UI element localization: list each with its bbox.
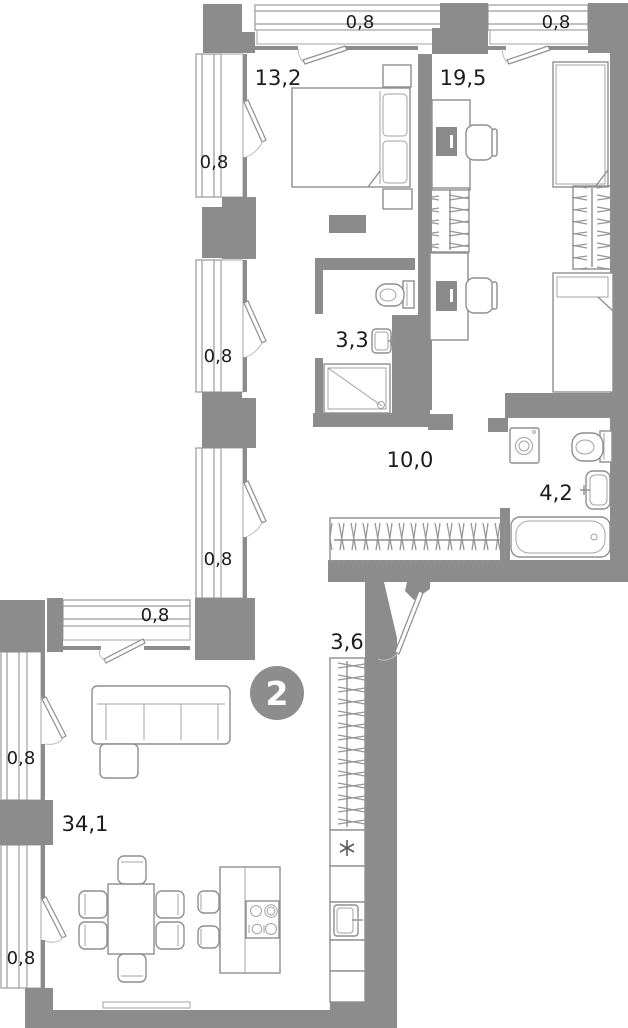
wall-jamb xyxy=(488,418,508,432)
room-area-label: 19,5 xyxy=(440,66,487,90)
balcony-door xyxy=(244,481,266,523)
cooktop xyxy=(246,901,279,938)
wall-pillar xyxy=(0,800,53,845)
wall-pillar xyxy=(222,398,256,448)
room-count-badge-label: 2 xyxy=(266,674,289,713)
wall-thin xyxy=(243,357,247,392)
wall-thin xyxy=(63,646,101,650)
wall-thin xyxy=(243,157,247,197)
washbasin xyxy=(580,471,610,509)
dining-chair xyxy=(156,922,184,949)
wall-pillar xyxy=(0,600,45,652)
bar-stool xyxy=(198,891,219,913)
room-area-label: 13,2 xyxy=(255,66,302,90)
room-area-label: 34,1 xyxy=(62,812,109,836)
room-bedroom xyxy=(292,65,412,233)
wall-thin xyxy=(243,260,247,303)
shower-tray xyxy=(324,364,390,413)
room-area-label: 4,2 xyxy=(539,481,572,505)
toilet xyxy=(376,281,414,308)
floor-plan-page: 0,8 0,8 0,8 0,8 0,8 0,8 0,8 0,8 13,2 19,… xyxy=(0,0,628,1028)
dining-chair xyxy=(118,856,146,884)
monitor xyxy=(436,281,457,311)
balcony-area-label: 0,8 xyxy=(141,605,170,626)
balcony-door xyxy=(42,697,66,738)
wall-south-upper xyxy=(328,560,628,582)
wall-thin xyxy=(243,448,247,483)
balcony-door xyxy=(303,46,347,64)
wall-shower-room xyxy=(313,413,393,427)
wall-thin xyxy=(243,537,247,598)
balcony-area-label: 0,8 xyxy=(200,152,229,173)
entrance-door xyxy=(395,591,423,654)
wall-pillar xyxy=(25,988,53,1012)
balcony-area-label: 0,8 xyxy=(204,346,233,367)
dining-table xyxy=(108,884,154,954)
balcony-door xyxy=(42,897,66,938)
office-chair xyxy=(466,278,497,313)
wall-thin xyxy=(41,845,45,899)
wall xyxy=(440,3,488,54)
wall xyxy=(203,32,255,53)
dining-chair xyxy=(156,891,184,918)
wall-thin xyxy=(41,940,45,988)
bathtub xyxy=(511,517,610,557)
wall-thin xyxy=(255,46,298,50)
toilet xyxy=(572,431,612,462)
radiator xyxy=(103,1002,190,1008)
wall-thin xyxy=(41,652,45,698)
balcony-door xyxy=(104,639,145,663)
room-bedroom-2 xyxy=(430,62,613,392)
balcony-area-label: 0,8 xyxy=(204,549,233,570)
wall-pillar xyxy=(222,197,256,259)
balcony-area-label: 0,8 xyxy=(542,12,571,33)
balcony-area-label: 0,8 xyxy=(7,748,36,769)
wall-shower-room xyxy=(315,358,323,415)
balcony-door xyxy=(244,100,266,142)
bar-stool xyxy=(198,926,219,948)
wardrobe-hangers xyxy=(330,658,365,830)
wall xyxy=(432,28,444,54)
room-area-label: 3,6 xyxy=(330,630,363,654)
balcony-door xyxy=(507,46,550,64)
room-living-kitchen xyxy=(79,686,280,1008)
balcony-lower-top-window xyxy=(63,600,190,640)
kitchen-cabinet xyxy=(330,866,365,902)
kitchen-cabinet xyxy=(330,940,365,971)
wall-cap xyxy=(47,598,63,652)
wall-thin xyxy=(548,46,610,50)
balcony-area-label: 0,8 xyxy=(346,12,375,33)
room-area-label: 10,0 xyxy=(387,448,434,472)
office-chair xyxy=(466,125,497,160)
wall-entry-right xyxy=(365,582,397,1010)
wall-thin xyxy=(41,744,45,800)
kitchen-cabinet xyxy=(330,971,365,1002)
wall-jamb xyxy=(428,414,453,430)
balcony-left-windows xyxy=(196,54,243,598)
room-entry-kitchen-strip xyxy=(330,658,365,1002)
room-area-label: 3,3 xyxy=(335,328,368,352)
wardrobe xyxy=(573,186,612,269)
dining-chair xyxy=(79,922,107,949)
washing-machine xyxy=(510,428,539,463)
floor-plan: 0,8 0,8 0,8 0,8 0,8 0,8 0,8 0,8 13,2 19,… xyxy=(0,0,628,1028)
wall-shower-room xyxy=(315,258,323,314)
wall-thin xyxy=(243,54,247,101)
double-bed xyxy=(292,88,410,187)
room-hallway xyxy=(330,518,505,562)
dining-chair xyxy=(79,891,107,918)
wall-thin xyxy=(144,646,190,650)
nightstand xyxy=(383,65,411,87)
monitor xyxy=(436,127,457,156)
wall-bathroom-top xyxy=(505,393,628,418)
dining-chair xyxy=(118,954,146,982)
corner-sofa xyxy=(92,686,230,778)
single-bed xyxy=(553,62,608,187)
wall-duct xyxy=(392,315,430,427)
wall-thin xyxy=(345,46,418,50)
single-bed xyxy=(553,273,613,392)
wall-pillar xyxy=(195,598,255,660)
kitchen-sink xyxy=(334,905,363,936)
tv-stand xyxy=(329,215,366,233)
nightstand xyxy=(383,189,412,209)
wardrobe-hangers xyxy=(330,518,505,562)
room-count-badge: 2 xyxy=(250,666,304,720)
wall-shower-room xyxy=(315,258,415,270)
balcony-area-label: 0,8 xyxy=(7,948,36,969)
wall-south-lower xyxy=(25,1010,397,1028)
wardrobe xyxy=(431,188,469,252)
balcony-door xyxy=(244,301,266,343)
